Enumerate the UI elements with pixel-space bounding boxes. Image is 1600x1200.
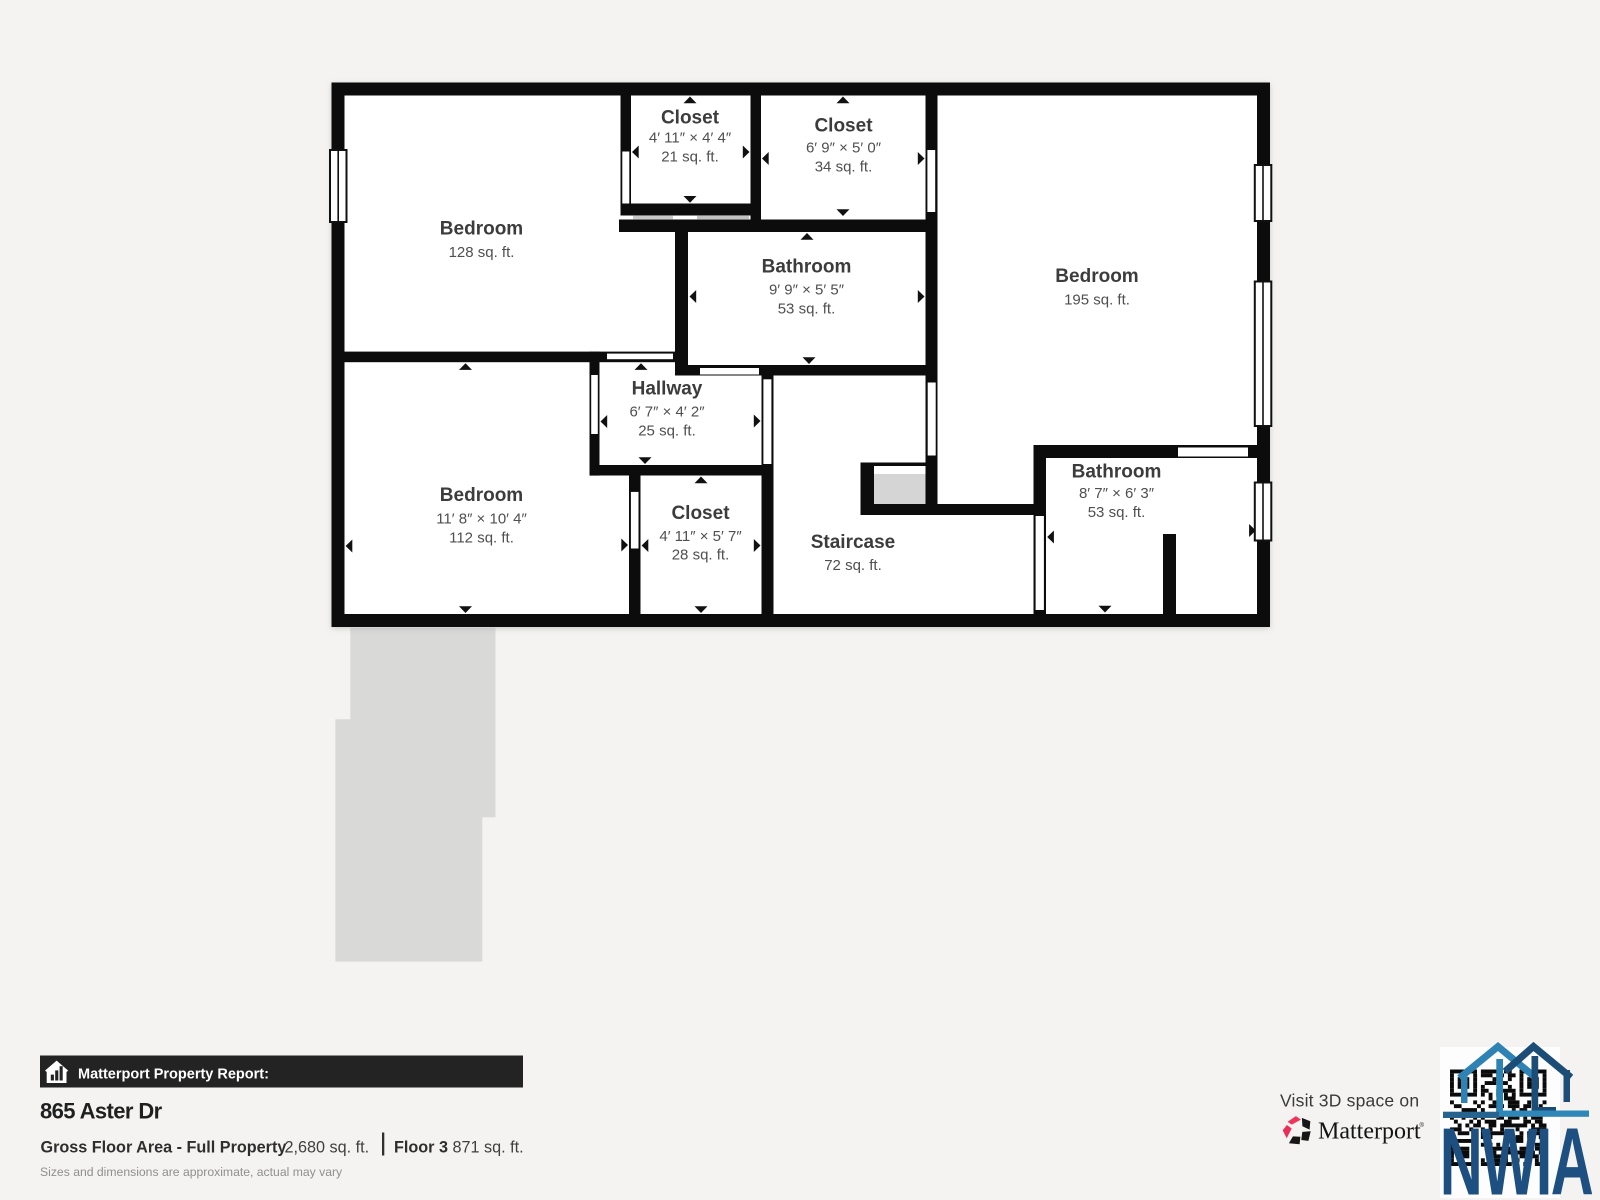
svg-text:Bathroom: Bathroom: [762, 257, 852, 278]
svg-text:Gross Floor Area - Full Proper: Gross Floor Area - Full Property: [41, 1139, 287, 1157]
svg-text:6′ 7″ × 4′ 2″: 6′ 7″ × 4′ 2″: [629, 404, 705, 421]
svg-text:11′ 8″ × 10′ 4″: 11′ 8″ × 10′ 4″: [436, 511, 527, 528]
svg-text:9′ 9″ × 5′ 5″: 9′ 9″ × 5′ 5″: [769, 282, 845, 299]
svg-text:865 Aster Dr: 865 Aster Dr: [40, 1099, 163, 1124]
svg-text:128 sq. ft.: 128 sq. ft.: [449, 244, 515, 261]
svg-text:25 sq. ft.: 25 sq. ft.: [638, 423, 696, 440]
svg-text:28 sq. ft.: 28 sq. ft.: [672, 547, 730, 564]
svg-text:112 sq. ft.: 112 sq. ft.: [449, 530, 514, 547]
svg-text:Bedroom: Bedroom: [440, 219, 523, 240]
svg-text:Bathroom: Bathroom: [1072, 462, 1162, 483]
svg-text:6′ 9″ × 5′ 0″: 6′ 9″ × 5′ 0″: [806, 140, 882, 157]
svg-text:195 sq. ft.: 195 sq. ft.: [1064, 292, 1130, 309]
svg-text:4′ 11″ × 4′ 4″: 4′ 11″ × 4′ 4″: [649, 130, 732, 147]
svg-text:Staircase: Staircase: [811, 532, 896, 553]
svg-text:Hallway: Hallway: [632, 379, 703, 400]
svg-text:4′ 11″ × 5′ 7″: 4′ 11″ × 5′ 7″: [659, 528, 742, 545]
svg-text:Floor 3: Floor 3: [394, 1139, 448, 1157]
svg-text:Bedroom: Bedroom: [440, 485, 523, 506]
svg-text:72 sq. ft.: 72 sq. ft.: [824, 557, 882, 574]
svg-text:Matterport Property Report:: Matterport Property Report:: [78, 1066, 269, 1082]
svg-text:8′ 7″ × 6′ 3″: 8′ 7″ × 6′ 3″: [1079, 485, 1155, 502]
svg-text:Bedroom: Bedroom: [1055, 266, 1138, 287]
svg-text:34 sq. ft.: 34 sq. ft.: [815, 159, 873, 176]
svg-text:53 sq. ft.: 53 sq. ft.: [1088, 504, 1146, 521]
svg-text:21 sq. ft.: 21 sq. ft.: [661, 149, 719, 166]
svg-text:NWIA: NWIA: [1440, 1108, 1593, 1200]
svg-text:Matterport: Matterport: [1318, 1119, 1421, 1145]
svg-text:Closet: Closet: [814, 116, 873, 137]
svg-text:Closet: Closet: [661, 108, 720, 129]
svg-text:2,680 sq. ft.: 2,680 sq. ft.: [285, 1139, 370, 1157]
svg-text:Visit 3D space on: Visit 3D space on: [1280, 1090, 1419, 1110]
svg-text:Sizes and dimensions are appro: Sizes and dimensions are approximate, ac…: [40, 1165, 343, 1179]
svg-text:Closet: Closet: [671, 503, 730, 524]
svg-text:871 sq. ft.: 871 sq. ft.: [453, 1139, 524, 1157]
svg-text:53 sq. ft.: 53 sq. ft.: [778, 301, 836, 318]
svg-text:®: ®: [1420, 1122, 1425, 1129]
